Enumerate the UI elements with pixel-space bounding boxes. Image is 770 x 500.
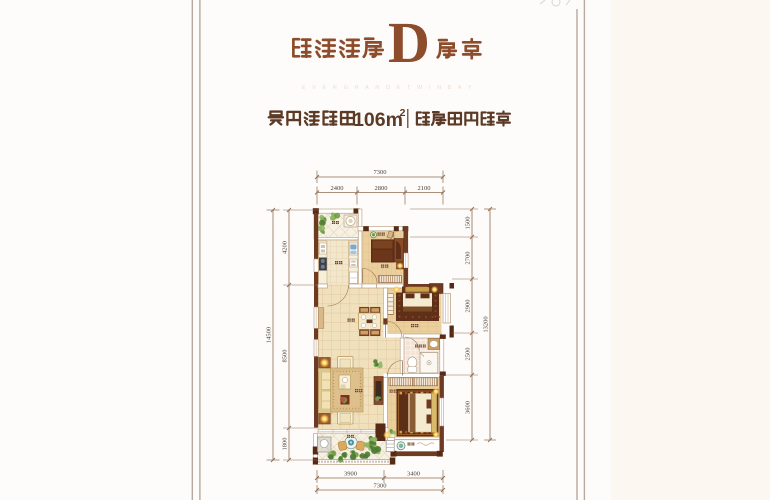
svg-text:106m: 106m — [353, 109, 403, 131]
svg-text:2400: 2400 — [331, 185, 344, 192]
svg-text:7300: 7300 — [374, 483, 387, 490]
svg-text:14500: 14500 — [266, 327, 273, 343]
svg-text:E V E R G R A N D E T W I N: E V E R G R A N D E T W I N B A Y — [302, 85, 474, 91]
svg-text:2900: 2900 — [465, 300, 472, 313]
svg-text:2500: 2500 — [465, 348, 472, 361]
svg-text:3400: 3400 — [407, 471, 420, 478]
svg-text:2800: 2800 — [375, 185, 388, 192]
svg-text:2700: 2700 — [465, 252, 472, 265]
svg-text:D: D — [388, 10, 430, 75]
svg-text:3600: 3600 — [465, 401, 472, 414]
svg-text:3900: 3900 — [344, 471, 357, 478]
svg-text:2100: 2100 — [418, 185, 431, 192]
svg-text:2: 2 — [400, 107, 406, 119]
svg-text:4200: 4200 — [282, 241, 289, 254]
svg-text:1500: 1500 — [465, 217, 472, 230]
svg-text:13200: 13200 — [483, 316, 490, 332]
svg-text:7300: 7300 — [374, 169, 387, 176]
svg-text:8500: 8500 — [282, 350, 289, 363]
svg-text:1800: 1800 — [282, 438, 289, 451]
